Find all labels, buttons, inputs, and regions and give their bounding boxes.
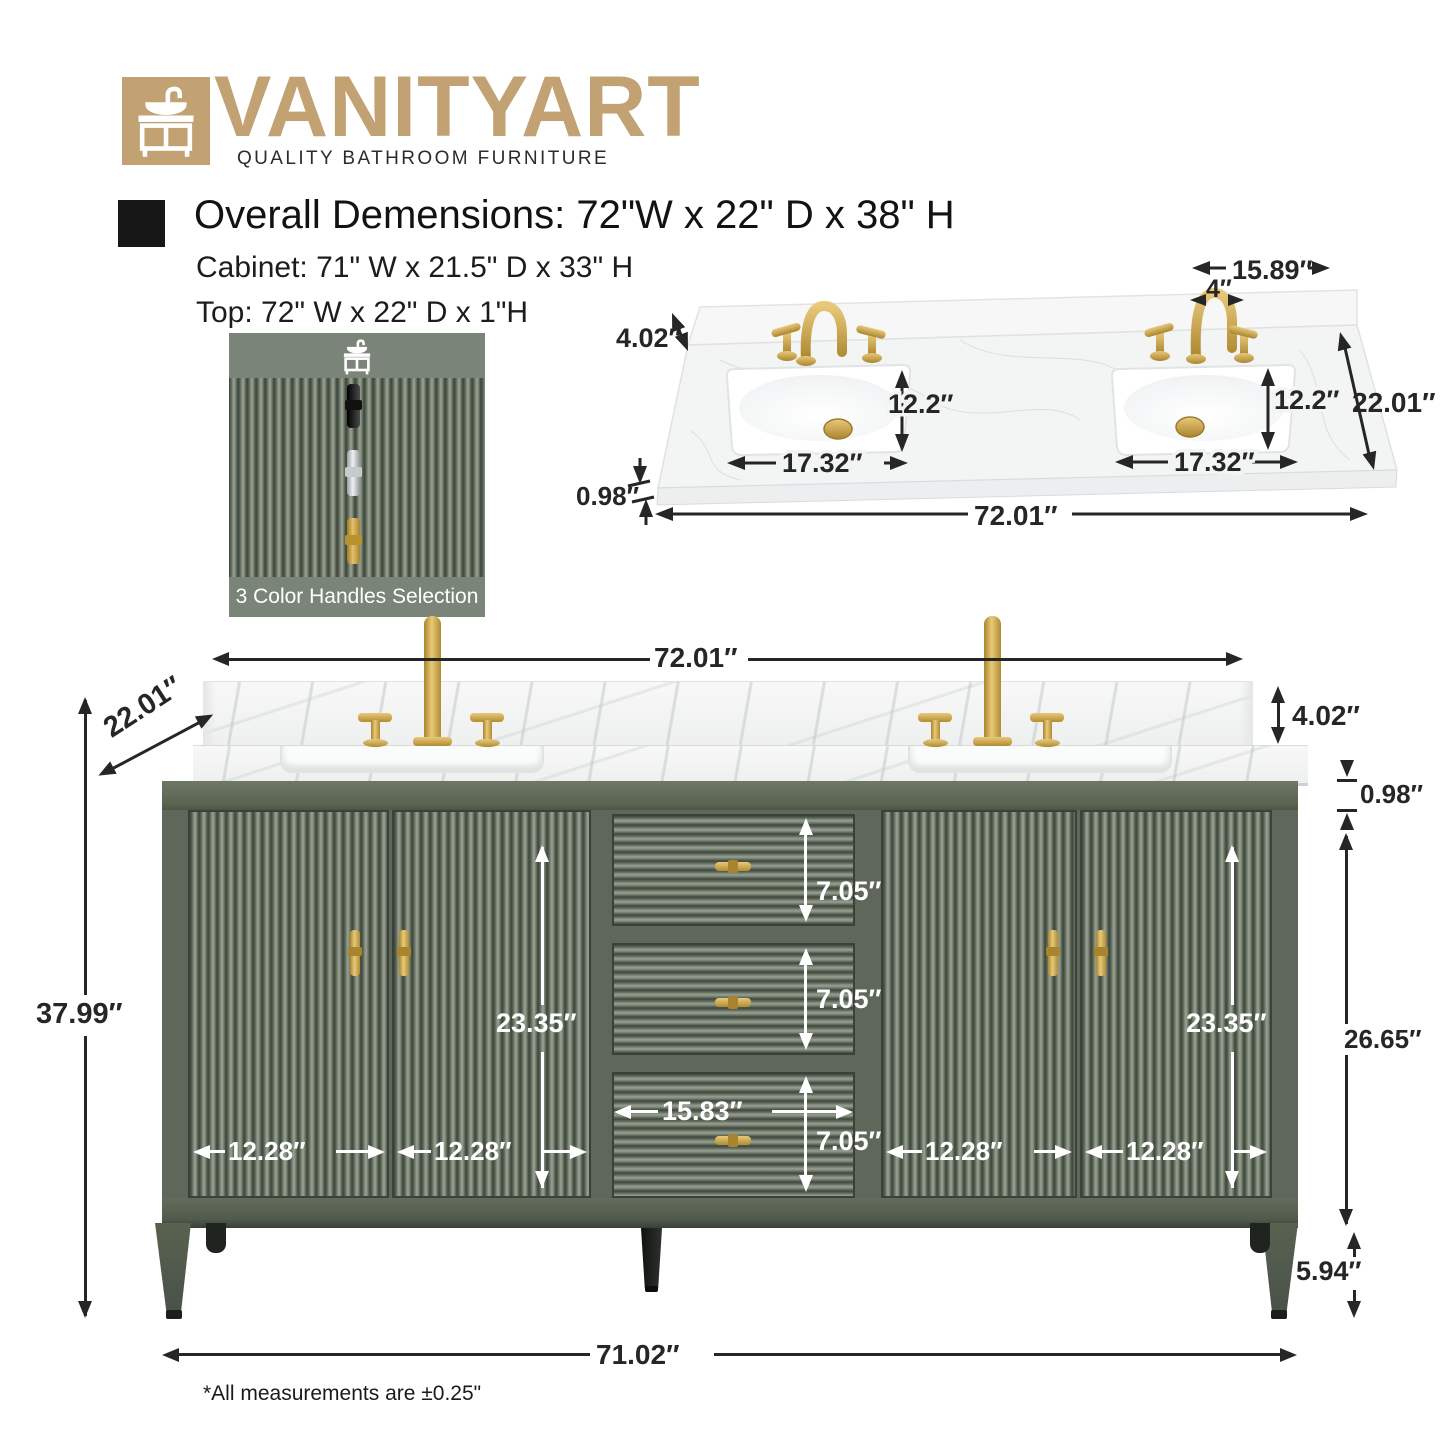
dim-door2-width: 12.28″ <box>434 1136 512 1167</box>
dim-door3-width: 12.28″ <box>925 1136 1003 1167</box>
door-2-handle-collar <box>397 947 411 956</box>
dim-bottom-width: 71.02″ <box>596 1339 679 1371</box>
dim-counter-thickness: 0.98″ <box>1360 779 1423 810</box>
dim-arrow <box>570 1145 587 1159</box>
dim-arrow <box>397 1145 414 1159</box>
dim-drawer2-line <box>804 965 807 1033</box>
door-3-handle <box>1048 930 1058 976</box>
dim-left-door-height-line <box>541 1052 544 1188</box>
front-left-sink-rim <box>280 746 544 773</box>
drawer-1-knob <box>715 862 751 871</box>
dim-arrow <box>1340 760 1354 777</box>
drawer-1-knob-collar <box>728 860 738 873</box>
dim-door4-line <box>1232 1150 1250 1153</box>
front-right-handle1-foot <box>923 739 948 747</box>
rear-right-leg <box>1250 1223 1270 1253</box>
dim-arrow <box>1225 1171 1239 1188</box>
front-right-leg-foot <box>1271 1310 1287 1319</box>
dim-top-width: 72.01″ <box>654 642 737 674</box>
dim-drawer2-height: 7.05″ <box>816 984 881 1015</box>
dim-bottom-width-line <box>178 1353 590 1356</box>
product-dimension-sheet: VANITYART QUALITY BATHROOM FURNITURE Ove… <box>0 0 1445 1445</box>
dim-left-sink-width: 17.32″ <box>782 448 863 478</box>
dim-thickness-tick <box>1337 779 1357 782</box>
dim-leg-height: 5.94″ <box>1296 1256 1361 1287</box>
left-sink-drain <box>824 419 852 439</box>
dim-door4-width: 12.28″ <box>1126 1136 1204 1167</box>
dim-arrow <box>1347 1232 1361 1249</box>
dim-faucet-spread: 15.89″ <box>1232 255 1313 285</box>
dim-left-door-height: 23.35″ <box>496 1008 577 1039</box>
dim-top-width-line <box>748 658 1226 661</box>
dim-arrow <box>1280 1348 1297 1362</box>
footnote: *All measurements are ±0.25" <box>203 1382 481 1406</box>
dim-arrow <box>1339 833 1353 850</box>
dim-arrow <box>1340 813 1354 830</box>
left-sink-bowl-shade <box>739 375 899 441</box>
dim-arrow <box>212 652 229 666</box>
drawer-3-knob-collar <box>728 1134 738 1147</box>
dim-arrow <box>1085 1145 1102 1159</box>
dim-arrow <box>1271 686 1285 703</box>
dim-backsplash-height: 4.02″ <box>1292 700 1360 732</box>
door-1-handle-collar <box>348 947 362 956</box>
dim-arrow <box>1347 1301 1361 1318</box>
dim-arrow <box>1339 1209 1353 1226</box>
dim-door1-line <box>209 1150 225 1153</box>
dim-door4-line <box>1101 1150 1123 1153</box>
cabinet-bottom-rail <box>162 1198 1298 1228</box>
dim-arrow <box>78 697 92 714</box>
dim-total-height-line <box>84 1036 87 1316</box>
dim-drawer3-height: 7.05″ <box>816 1126 881 1157</box>
dim-backsplash-height: 4.02″ <box>616 323 682 353</box>
dim-arrow <box>836 1105 853 1119</box>
dim-arrow <box>799 818 813 835</box>
dim-arrow <box>368 1145 385 1159</box>
dim-arrow <box>1225 845 1239 862</box>
dim-thickness-tick <box>1337 809 1357 812</box>
dim-arrow <box>799 1033 813 1050</box>
dim-front-thickness: 0.98″ <box>576 481 639 511</box>
dim-drawer1-line <box>804 835 807 905</box>
dim-right-door-height: 23.35″ <box>1186 1008 1267 1039</box>
dim-top-width-line <box>226 658 650 661</box>
dim-right-sink-width: 17.32″ <box>1174 447 1255 477</box>
dim-total-height-line <box>84 700 87 995</box>
cabinet-top-rail <box>162 781 1298 810</box>
right-faucet-base <box>1186 354 1206 364</box>
dim-drawer3-line <box>804 1093 807 1175</box>
center-leg-foot <box>645 1286 658 1292</box>
dim-arrow <box>799 905 813 922</box>
drawer-3-knob <box>715 1136 751 1145</box>
dim-total-width: 72.01″ <box>974 500 1057 531</box>
dim-arrow <box>162 1348 179 1362</box>
dim-arrow <box>1226 652 1243 666</box>
drawer-2-knob <box>715 998 751 1007</box>
dim-door2-line <box>542 1150 570 1153</box>
front-left-handle2-foot <box>475 739 500 747</box>
dim-arrow <box>886 1145 903 1159</box>
dim-door3-line <box>1034 1150 1055 1153</box>
dim-door3-line <box>902 1150 922 1153</box>
door-3-handle-collar <box>1046 947 1060 956</box>
dim-arrow <box>799 948 813 965</box>
dim-total-depth: 22.01″ <box>1352 387 1435 418</box>
dim-arrow <box>535 1171 549 1188</box>
dim-arrow <box>614 1105 631 1119</box>
front-left-leg-foot <box>166 1310 182 1319</box>
dim-drawer-width: 15.83″ <box>662 1096 743 1127</box>
door-1-handle <box>350 930 360 976</box>
door-4-handle <box>1096 930 1106 976</box>
dim-arrow <box>78 1301 92 1318</box>
dim-door1-line <box>336 1150 368 1153</box>
dim-cabinet-body-height: 26.65″ <box>1344 1024 1422 1055</box>
front-left-faucet-base <box>413 737 452 746</box>
right-sink-bowl-shade <box>1124 375 1284 441</box>
door-2-handle <box>399 930 409 976</box>
left-faucet-base <box>796 356 816 366</box>
front-right-sink-rim <box>908 746 1172 773</box>
dim-drawer-width-line <box>772 1110 836 1113</box>
front-right-faucet-base <box>973 737 1012 746</box>
dim-right-sink-depth: 12.2″ <box>1274 385 1340 415</box>
front-right-handle2-foot <box>1035 739 1060 747</box>
rear-left-leg <box>206 1223 226 1253</box>
door-4-handle-collar <box>1094 947 1108 956</box>
front-backsplash-right-return <box>1240 681 1253 745</box>
dim-bottom-width-line <box>714 1353 1280 1356</box>
dim-arrow <box>193 1145 210 1159</box>
dim-right-door-height-line <box>1231 847 1234 1005</box>
front-left-handle1-foot <box>363 739 388 747</box>
front-right-faucet-spout <box>984 616 1001 746</box>
front-left-faucet-spout <box>424 616 441 746</box>
dim-door2-line <box>413 1150 431 1153</box>
dim-leg-line <box>1353 1290 1356 1301</box>
dim-arrow <box>1055 1145 1072 1159</box>
dim-drawer-width-line <box>630 1110 658 1113</box>
dim-left-door-height-line <box>541 847 544 1005</box>
right-sink-drain <box>1176 417 1204 437</box>
dim-arrow <box>535 845 549 862</box>
dim-arrow <box>799 1175 813 1192</box>
dim-faucet-hole-spacing: 4″ <box>1206 275 1232 303</box>
dim-left-sink-depth: 12.2″ <box>888 389 954 419</box>
dim-door1-width: 12.28″ <box>228 1136 306 1167</box>
dim-arrow <box>1250 1145 1267 1159</box>
dim-right-door-height-line <box>1231 1052 1234 1188</box>
dim-arrow <box>799 1076 813 1093</box>
dim-drawer1-height: 7.05″ <box>816 876 881 907</box>
dim-total-height: 37.99″ <box>36 998 122 1031</box>
drawer-2-knob-collar <box>728 996 738 1009</box>
dim-arrow <box>1271 727 1285 744</box>
